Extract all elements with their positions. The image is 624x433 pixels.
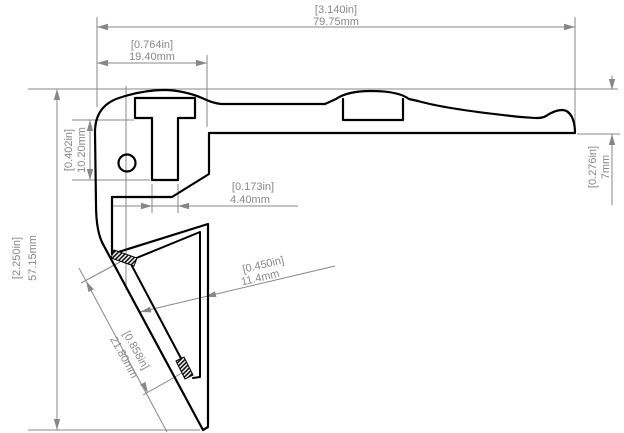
arrowhead: [54, 89, 60, 100]
arrowhead: [86, 281, 94, 292]
dim-channel-block-width-inches: [0.764in]: [131, 39, 173, 51]
dim-slot-depth-mm: 10.20mm: [76, 127, 88, 173]
profile-main-outline: [95, 90, 575, 430]
dimension-labels-group: [3.140in] 79.75mm [0.764in] 19.40mm [0.4…: [11, 4, 612, 381]
arrowhead: [205, 291, 216, 297]
arrowhead: [196, 60, 207, 66]
arrowheads-group: [54, 24, 615, 430]
led-strip-slot: [135, 98, 195, 180]
arrowhead: [564, 24, 575, 30]
dim-slot-width-inches: [0.173in]: [232, 181, 274, 193]
screw-channel: [343, 99, 403, 120]
dim-total-width-mm: 79.75mm: [313, 16, 359, 28]
technical-drawing-page: [3.140in] 79.75mm [0.764in] 19.40mm [0.4…: [0, 0, 624, 433]
dim-total-height-inches: [2.250in]: [11, 237, 23, 279]
dim-insert-depth: [140, 266, 335, 312]
dim-total-width: [97, 17, 575, 127]
dim-total-width-inches: [3.140in]: [315, 4, 357, 16]
arrowhead: [97, 60, 108, 66]
insert-hatch-top: [111, 250, 137, 266]
profile-outline-group: [95, 90, 575, 430]
extension-line: [143, 373, 182, 395]
arrowhead: [141, 203, 152, 209]
dim-edge-height-inches: [0.276in]: [587, 146, 599, 188]
technical-drawing-canvas: [3.140in] 79.75mm [0.764in] 19.40mm [0.4…: [0, 0, 624, 433]
dimension-line: [140, 266, 335, 312]
arrowhead: [609, 134, 615, 145]
dimension-lines-group: [28, 17, 620, 432]
dim-slot-width-mm: 4.40mm: [230, 194, 270, 206]
arrowhead: [140, 307, 151, 313]
insert-hatch-bottom: [176, 357, 193, 379]
dim-slot-depth-inches: [0.402in]: [63, 129, 75, 171]
arrowhead: [54, 419, 60, 430]
dim-total-height-mm: 57.15mm: [27, 235, 39, 281]
dim-channel-block-width-mm: 19.40mm: [129, 51, 175, 63]
arrowhead: [97, 24, 108, 30]
dim-edge-height-mm: 7mm: [600, 155, 612, 179]
mounting-hole: [119, 155, 136, 172]
arrowhead: [609, 79, 615, 90]
arrowhead: [178, 203, 189, 209]
